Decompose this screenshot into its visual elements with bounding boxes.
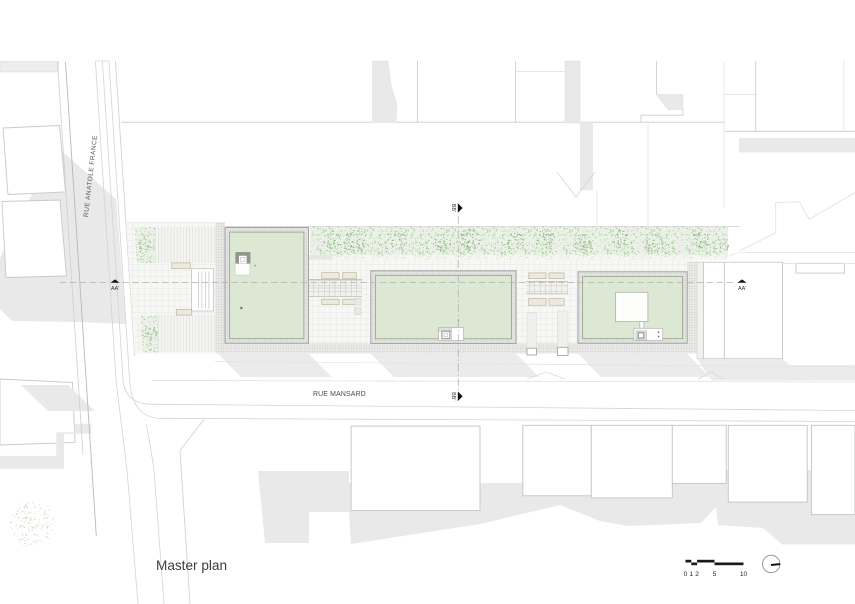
svg-text:BB’: BB’ [450, 392, 456, 400]
svg-text:5: 5 [713, 571, 717, 578]
svg-text:AA’: AA’ [111, 286, 119, 292]
svg-text:0: 0 [684, 571, 688, 578]
svg-text:10: 10 [740, 571, 748, 578]
svg-text:BB’: BB’ [450, 204, 456, 212]
svg-text:1: 1 [689, 571, 693, 578]
svg-text:2: 2 [695, 571, 699, 578]
svg-text:RUE MANSARD: RUE MANSARD [313, 391, 366, 398]
svg-text:AA’: AA’ [738, 286, 746, 292]
svg-text:Master plan: Master plan [156, 558, 227, 573]
